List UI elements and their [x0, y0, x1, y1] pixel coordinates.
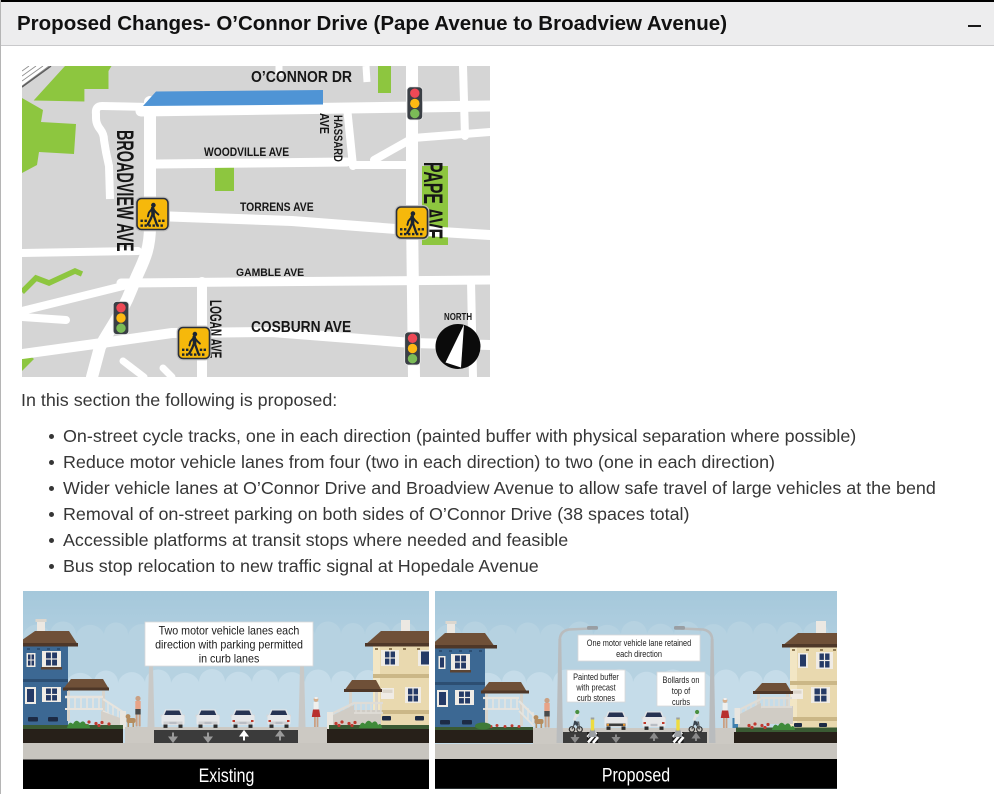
svg-text:O’CONNOR DR: O’CONNOR DR	[251, 69, 352, 86]
svg-text:top of: top of	[672, 686, 691, 696]
svg-text:each direction: each direction	[616, 649, 662, 659]
svg-text:TORRENS AVE: TORRENS AVE	[240, 201, 314, 214]
svg-text:WOODVILLE AVE: WOODVILLE AVE	[204, 146, 289, 159]
svg-text:HASSARD: HASSARD	[331, 115, 344, 162]
svg-text:in curb lanes: in curb lanes	[199, 653, 260, 665]
svg-text:AVE: AVE	[317, 113, 331, 134]
svg-text:with precast: with precast	[575, 683, 616, 693]
svg-text:Painted buffer: Painted buffer	[573, 672, 619, 682]
svg-text:One motor vehicle lane retaine: One motor vehicle lane retained	[587, 638, 692, 648]
svg-text:GAMBLE AVE: GAMBLE AVE	[236, 267, 304, 280]
svg-text:Existing: Existing	[199, 764, 255, 786]
svg-text:NORTH: NORTH	[444, 311, 472, 322]
svg-text:Two motor vehicle lanes each: Two motor vehicle lanes each	[159, 625, 300, 637]
svg-text:curb stones: curb stones	[577, 693, 615, 703]
svg-text:BROADVIEW AVE: BROADVIEW AVE	[111, 130, 138, 252]
svg-text:COSBURN AVE: COSBURN AVE	[251, 319, 351, 336]
svg-text:Bollards on: Bollards on	[663, 675, 700, 685]
svg-text:curbs: curbs	[672, 697, 690, 707]
svg-text:direction with parking permitt: direction with parking permitted	[155, 639, 303, 651]
svg-text:Proposed: Proposed	[602, 764, 670, 786]
